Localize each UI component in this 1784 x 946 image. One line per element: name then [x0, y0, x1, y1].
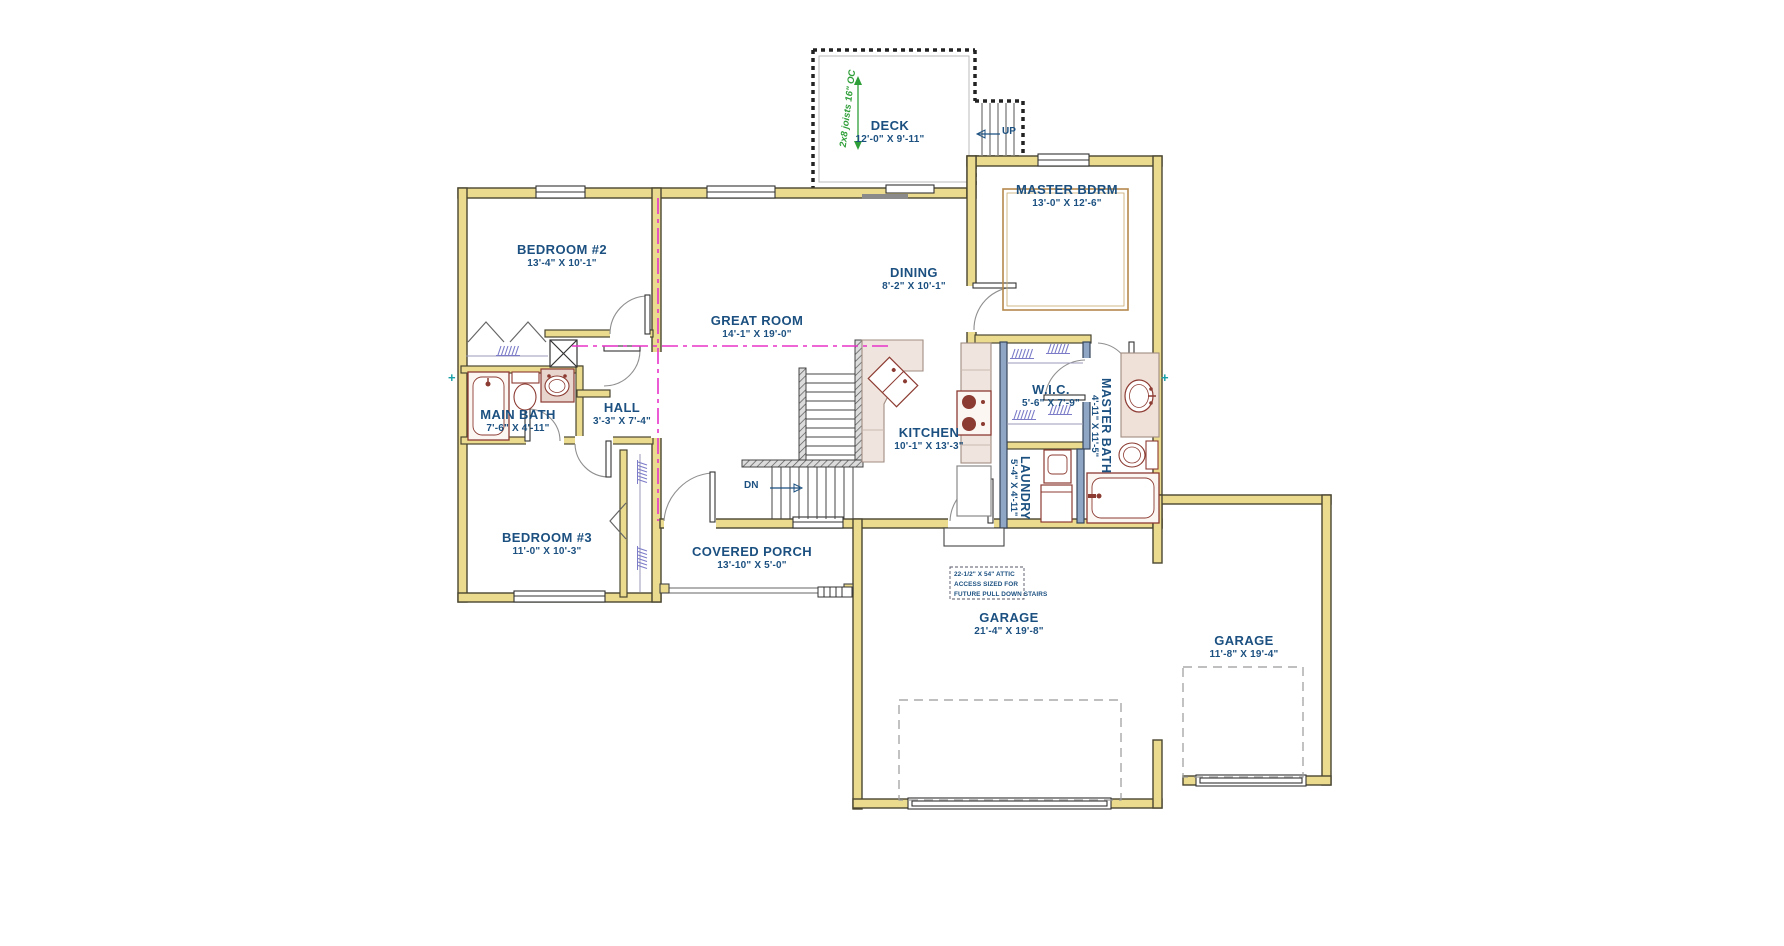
floor-plan: + + DECK 12'-0" X 9'-11" UP 2x8 joists 1… — [0, 0, 1784, 946]
garage-step — [944, 528, 1004, 546]
room-dims: 13'-0" X 12'-6" — [1016, 198, 1118, 211]
chase-box — [550, 340, 577, 367]
room-label-wic: W.I.C. 5'-6" X 7'-9" — [1022, 382, 1080, 411]
room-name: COVERED PORCH — [692, 544, 812, 560]
dn-arrow — [770, 484, 802, 492]
refrigerator — [957, 466, 991, 516]
room-dims: 3'-3" X 7'-4" — [593, 416, 651, 429]
room-label-hall: HALL 3'-3" X 7'-4" — [593, 400, 651, 429]
attic-note-line: FUTURE PULL DOWN STAIRS — [954, 590, 1047, 600]
room-label-master-bath: MASTER BATH 4'-11" X 11'-5" — [1089, 370, 1112, 482]
room-label-garage-main: GARAGE 21'-4" X 19'-8" — [974, 610, 1044, 639]
room-name: MAIN BATH — [480, 407, 556, 423]
room-label-master-bdrm: MASTER BDRM 13'-0" X 12'-6" — [1016, 182, 1118, 211]
room-label-covered-porch: COVERED PORCH 13'-10" X 5'-0" — [692, 544, 812, 573]
room-label-garage-side: GARAGE 11'-8" X 19'-4" — [1210, 633, 1279, 662]
svg-text:+: + — [448, 370, 456, 385]
room-dims: 12'-0" X 9'-11" — [856, 134, 925, 147]
room-name: DINING — [882, 265, 946, 281]
room-dims: 13'-4" X 10'-1" — [517, 258, 607, 271]
room-label-kitchen: KITCHEN 10'-1" X 13'-3" — [894, 425, 964, 454]
attic-access-note: 22-1/2" X 54" ATTIC ACCESS SIZED FOR FUT… — [954, 570, 1047, 600]
laundry-fixtures — [1041, 450, 1072, 522]
room-name: LAUNDRY — [1018, 452, 1031, 524]
room-label-great-room: GREAT ROOM 14'-1" X 19'-0" — [711, 313, 804, 342]
room-dims: 13'-10" X 5'-0" — [692, 560, 812, 573]
room-name: GREAT ROOM — [711, 313, 804, 329]
room-name: MASTER BDRM — [1016, 182, 1118, 198]
room-dims: 21'-4" X 19'-8" — [974, 626, 1044, 639]
room-label-main-bath: MAIN BATH 7'-6" X 4'-11" — [480, 407, 556, 436]
room-label-deck: DECK 12'-0" X 9'-11" — [856, 118, 925, 147]
porch-edge — [660, 584, 853, 597]
room-dims: 5'-4" X 4'-11" — [1008, 452, 1018, 524]
room-label-bedroom-2: BEDROOM #2 13'-4" X 10'-1" — [517, 242, 607, 271]
room-dims: 11'-0" X 10'-3" — [502, 546, 592, 559]
room-dims: 10'-1" X 13'-3" — [894, 441, 964, 454]
stair-walls — [742, 340, 863, 467]
room-dims: 5'-6" X 7'-9" — [1022, 398, 1080, 411]
room-name: GARAGE — [974, 610, 1044, 626]
room-label-bedroom-3: BEDROOM #3 11'-0" X 10'-3" — [502, 530, 592, 559]
room-label-laundry: LAUNDRY 5'-4" X 4'-11" — [1008, 452, 1031, 524]
stairs-down — [772, 374, 855, 519]
room-name: BEDROOM #2 — [517, 242, 607, 258]
room-dims: 4'-11" X 11'-5" — [1089, 370, 1099, 482]
room-name: DECK — [856, 118, 925, 134]
stair-label-dn: DN — [744, 480, 758, 491]
stair-label-up: UP — [1002, 126, 1016, 137]
room-label-dining: DINING 8'-2" X 10'-1" — [882, 265, 946, 294]
room-name: BEDROOM #3 — [502, 530, 592, 546]
room-name: HALL — [593, 400, 651, 416]
room-dims: 14'-1" X 19'-0" — [711, 329, 804, 342]
room-name: W.I.C. — [1022, 382, 1080, 398]
room-dims: 8'-2" X 10'-1" — [882, 281, 946, 294]
room-dims: 7'-6" X 4'-11" — [480, 423, 556, 436]
attic-note-line: 22-1/2" X 54" ATTIC — [954, 570, 1047, 580]
room-dims: 11'-8" X 19'-4" — [1210, 649, 1279, 662]
room-name: GARAGE — [1210, 633, 1279, 649]
garage-doors — [908, 775, 1306, 809]
svg-text:+: + — [1161, 370, 1169, 385]
attic-note-line: ACCESS SIZED FOR — [954, 580, 1047, 590]
room-name: KITCHEN — [894, 425, 964, 441]
room-name: MASTER BATH — [1099, 370, 1112, 482]
